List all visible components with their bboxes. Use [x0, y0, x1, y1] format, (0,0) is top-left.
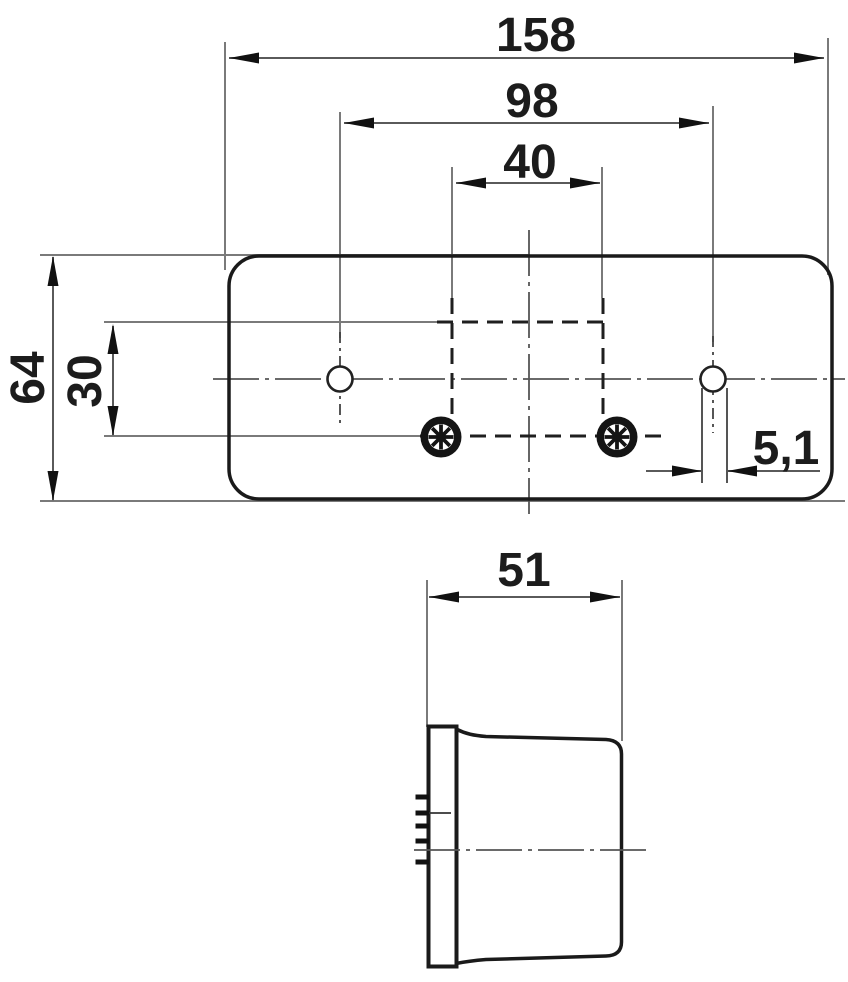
mounting-hole-right	[701, 367, 726, 392]
flange-tick	[416, 811, 430, 816]
dim-40: 40	[456, 136, 600, 189]
dim-98-label: 98	[505, 75, 558, 128]
arrowhead-down-icon	[108, 406, 119, 436]
dim-5-1-label: 5,1	[753, 422, 820, 475]
flange-tick	[416, 860, 430, 865]
dim-51-label: 51	[497, 544, 550, 597]
drawing-page: 158 98 40 64 30	[0, 0, 848, 982]
lamp-outline	[229, 256, 832, 499]
mounting-hole-left	[328, 367, 353, 392]
arrowhead-left-icon	[456, 178, 486, 189]
dim-98: 98	[344, 75, 709, 129]
arrowhead-left-icon	[344, 118, 374, 129]
flange-tick	[416, 839, 430, 844]
side-view: 51	[414, 544, 648, 967]
dim-64-label: 64	[2, 351, 55, 405]
screw-center	[436, 432, 446, 442]
drawing-canvas: 158 98 40 64 30	[0, 0, 848, 982]
arrowhead-right-icon	[590, 592, 620, 603]
dim-30: 30	[59, 324, 119, 436]
dim-51: 51	[427, 544, 622, 741]
flange-tick	[416, 795, 430, 800]
dim-158-label: 158	[496, 9, 576, 62]
arrowhead-up-icon	[48, 256, 59, 286]
mounting-flange	[429, 727, 457, 967]
dim-40-label: 40	[503, 136, 556, 189]
front-view: 158 98 40 64 30	[2, 9, 845, 514]
hidden-lines	[420, 298, 667, 436]
dim-5-1: 5,1	[646, 388, 820, 483]
dim-64: 64	[2, 256, 59, 501]
arrowhead-right-icon	[570, 178, 600, 189]
arrowhead-right-icon	[679, 118, 709, 129]
arrowhead-right-icon	[672, 466, 702, 477]
arrowhead-up-icon	[108, 324, 119, 354]
arrowhead-down-icon	[48, 471, 59, 501]
lamp-body-profile	[456, 729, 622, 964]
flange-tick	[416, 824, 430, 829]
dim-30-label: 30	[59, 354, 112, 407]
screw-center	[612, 432, 622, 442]
screw-left	[421, 417, 462, 458]
arrowhead-left-icon	[229, 53, 259, 64]
dim-158: 158	[229, 9, 824, 64]
screw-right	[597, 417, 638, 458]
arrowhead-left-icon	[429, 592, 459, 603]
arrowhead-right-icon	[794, 53, 824, 64]
